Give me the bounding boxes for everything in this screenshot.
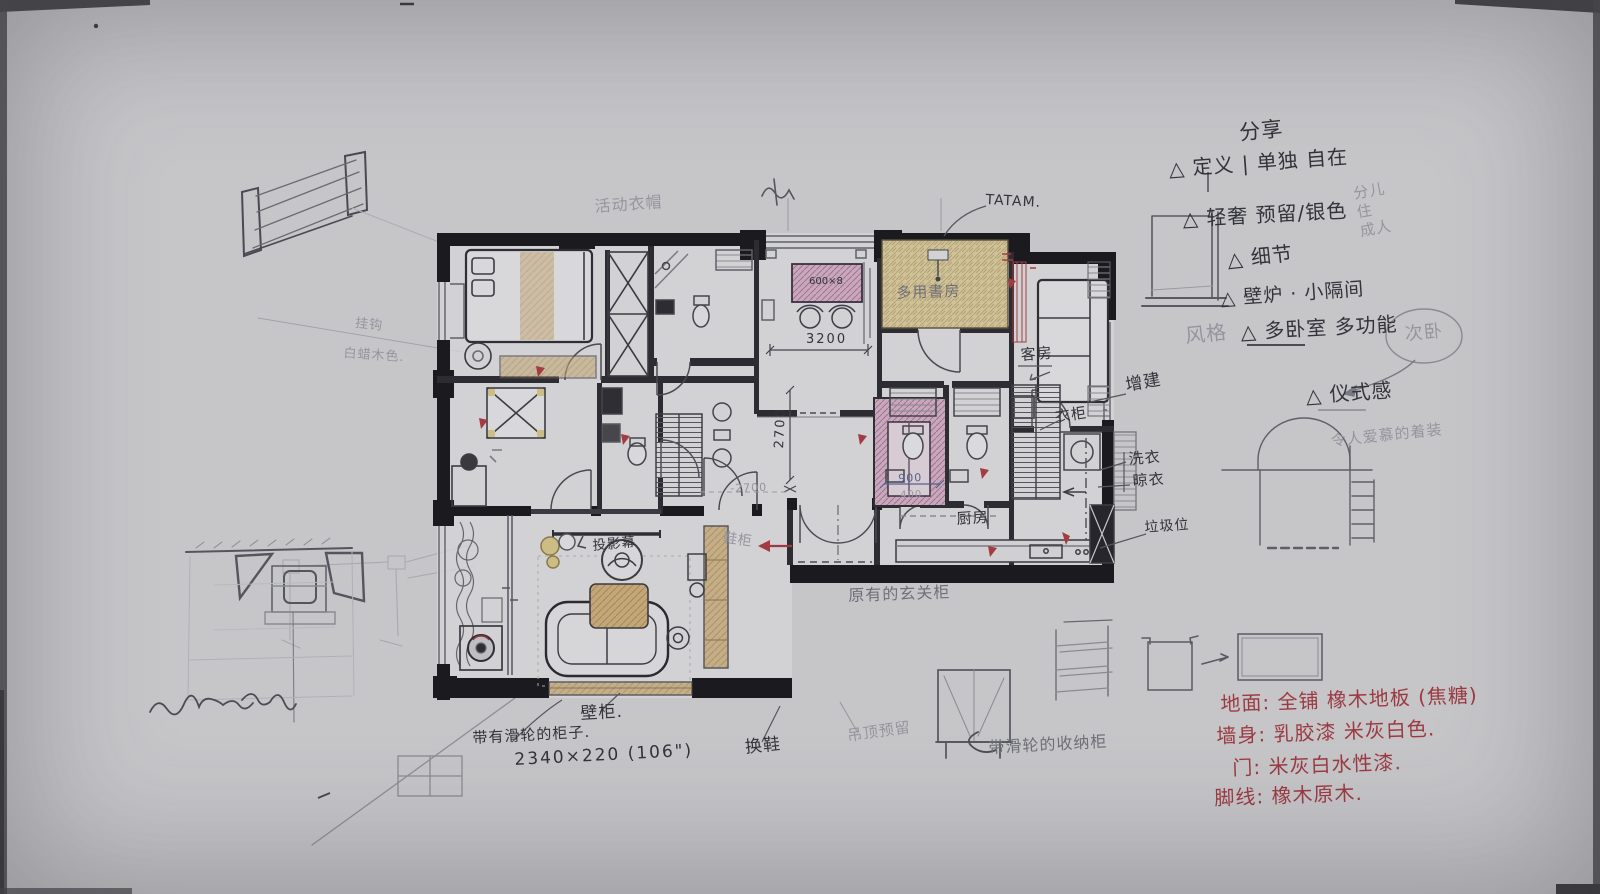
label-tatami: TATAM. bbox=[985, 192, 1041, 212]
label-drying: 晾衣 bbox=[1132, 470, 1165, 491]
scribble-top bbox=[762, 179, 794, 205]
label-dim-400: 400 bbox=[900, 489, 923, 502]
label-laundry: 洗衣 bbox=[1128, 448, 1161, 469]
label-note-style: 风格 bbox=[1184, 320, 1228, 349]
label-hook-note: 挂钩 bbox=[354, 316, 384, 335]
label-note-share: 分享 bbox=[1238, 115, 1285, 146]
label-desk-dim: 600×8 bbox=[809, 276, 843, 289]
entry-wall-cabinet bbox=[549, 682, 692, 695]
leader-line bbox=[352, 208, 444, 244]
bench-sketch bbox=[242, 152, 367, 256]
label-study: 多用書房 bbox=[896, 282, 961, 303]
label-material-skirting: 脚线: 橡木原木. bbox=[1214, 781, 1363, 811]
leader-line bbox=[312, 698, 515, 845]
unit-before-after-sketch bbox=[1142, 634, 1322, 690]
label-kitchen: 厨房 bbox=[956, 508, 989, 529]
floor-plan bbox=[433, 172, 1462, 742]
label-dim-2700: 2700 bbox=[772, 407, 790, 449]
label-wall-cabinet: 壁柜. bbox=[580, 702, 623, 725]
label-guest-room: 客房 bbox=[1020, 344, 1053, 365]
label-trash: 垃圾位 bbox=[1144, 517, 1190, 538]
shelf-rack-sketch bbox=[1056, 620, 1112, 700]
label-note-circle: 次卧 bbox=[1404, 321, 1444, 347]
label-dim-900: 900 bbox=[898, 471, 922, 486]
label-dim-3200: 3200 bbox=[806, 332, 847, 348]
tv-wall-elevation bbox=[186, 538, 364, 722]
label-old-cabinet: 原有的玄关柜 bbox=[848, 582, 951, 606]
label-change-shoes: 换鞋 bbox=[744, 734, 782, 759]
sketch-canvas: 分享 △ 定义 | 单独 自在 分儿 住 成人 △ 轻奢 预留/银色 △ 细节 … bbox=[0, 0, 1600, 894]
label-dim-2700b: -2700 bbox=[730, 481, 767, 496]
